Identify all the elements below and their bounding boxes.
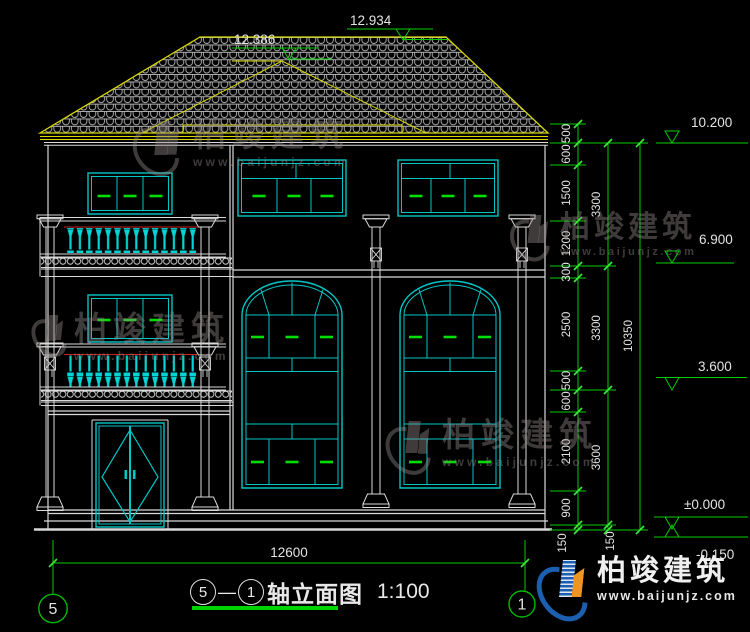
door-handle	[125, 470, 128, 479]
frieze-circles	[41, 392, 232, 401]
company-logo-brand: 柏竣建筑	[597, 556, 737, 588]
company-logo: 柏竣建筑 www.baijunjz.com	[540, 556, 737, 620]
balcony-third-floor	[40, 217, 233, 277]
dim-seg-9: 900	[561, 498, 573, 517]
level-ground: ±0.000	[684, 497, 725, 512]
axis-bubble-left-label: 5	[49, 601, 58, 618]
elevation-drawing: 500 600 1500 1200 300 2500 500 600 2100 …	[0, 0, 750, 632]
level-ridge-main: 12.934	[350, 13, 392, 28]
drawing-title: 5 — 1 轴立面图 1:100	[190, 575, 430, 609]
roof	[40, 37, 548, 145]
window-left-2f	[88, 295, 172, 342]
cad-canvas: 500 600 1500 1200 300 2500 500 600 2100 …	[0, 0, 750, 632]
dim-seg-5: 2500	[561, 312, 573, 338]
title-axis-start: 5	[190, 579, 216, 605]
window-centre-3f	[238, 160, 346, 216]
balusters	[66, 356, 198, 387]
title-scale: 1:100	[377, 580, 430, 604]
dim-seg-7: 600	[561, 391, 573, 410]
level-second-floor: 3.600	[698, 359, 732, 374]
dim-total-0: 3300	[591, 192, 603, 218]
axis-bubble-right-label: 1	[518, 597, 527, 614]
title-axis-end: 1	[238, 579, 264, 605]
window-right-3f	[398, 160, 498, 216]
dim-total-3: 150	[605, 531, 617, 550]
title-text: 轴立面图	[267, 575, 363, 609]
arched-window-centre	[242, 281, 342, 488]
dim-total-1: 3300	[591, 315, 603, 341]
dim-overall-height: 10350	[623, 320, 635, 352]
dim-seg-2: 1500	[561, 180, 573, 206]
dim-seg-10: 150	[557, 533, 569, 552]
dimensions-right: 500 600 1500 1200 300 2500 500 600 2100 …	[550, 120, 648, 553]
dim-seg-8: 2100	[561, 439, 573, 465]
balcony-second-floor	[40, 344, 233, 406]
frieze-circles	[41, 259, 232, 268]
dim-seg-3: 1200	[561, 231, 573, 257]
dim-seg-6: 500	[561, 371, 573, 390]
title-separator: —	[218, 582, 236, 603]
window-left-3f	[88, 173, 172, 214]
company-logo-url: www.baijunjz.com	[597, 589, 737, 603]
entrance-door	[92, 420, 168, 529]
level-eave: 10.200	[691, 115, 732, 130]
dim-seg-1: 600	[561, 144, 573, 163]
balusters	[66, 228, 198, 253]
level-ridge-secondary: 12.386	[234, 32, 275, 47]
door-handle	[133, 470, 136, 479]
wall-top-band	[44, 143, 548, 146]
title-underline	[192, 606, 338, 610]
dim-seg-4: 300	[561, 262, 573, 281]
dim-overall-width: 12600	[270, 545, 308, 560]
level-third-floor: 6.900	[699, 232, 733, 247]
dim-seg-0: 500	[561, 124, 573, 143]
arched-window-right	[400, 281, 500, 488]
windows	[88, 160, 500, 488]
dim-total-2: 3600	[591, 445, 603, 471]
company-logo-icon	[540, 556, 592, 620]
